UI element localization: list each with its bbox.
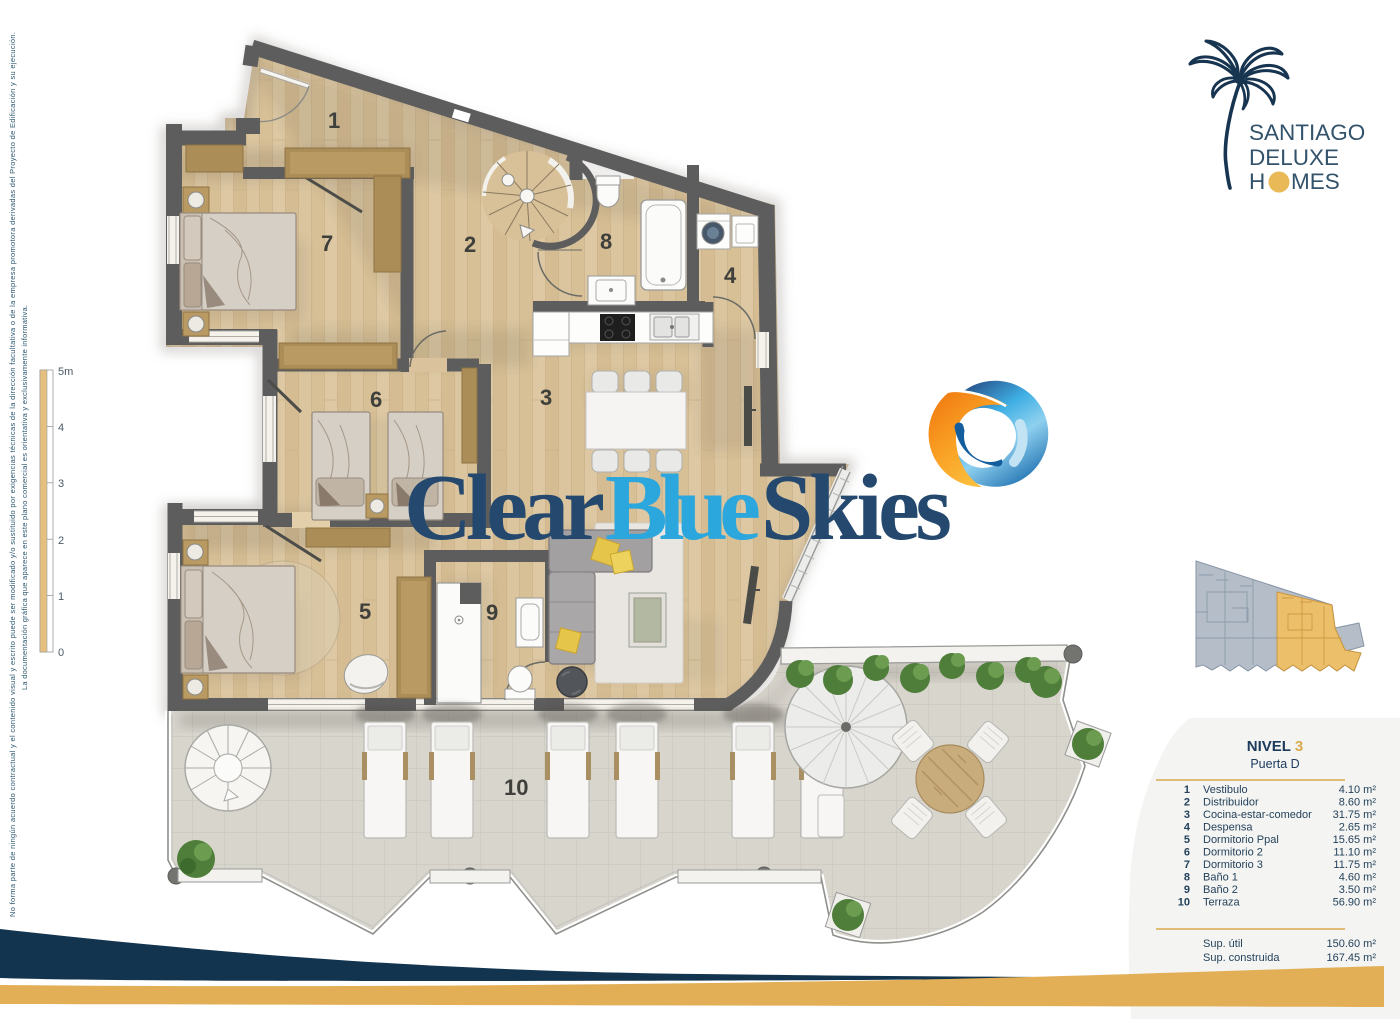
svg-text:Sup. útil: Sup. útil [1203,938,1243,950]
svg-text:8: 8 [1184,872,1190,884]
svg-text:2: 2 [1184,797,1190,809]
svg-text:6: 6 [1184,847,1190,859]
svg-text:3: 3 [58,478,64,490]
svg-text:ClearBlueSkies: ClearBlueSkies [404,456,952,560]
svg-text:Sup. construida: Sup. construida [1203,952,1280,964]
svg-text:1: 1 [328,108,340,133]
svg-text:Baño 1: Baño 1 [1203,872,1238,884]
svg-text:150.60 m²: 150.60 m² [1326,938,1376,950]
svg-text:7: 7 [1184,859,1190,871]
svg-text:Despensa: Despensa [1203,822,1253,834]
svg-text:5: 5 [359,599,371,624]
svg-text:MES: MES [1291,169,1340,194]
svg-text:3: 3 [1184,809,1190,821]
svg-text:Dormitorio Ppal: Dormitorio Ppal [1203,834,1279,846]
svg-text:La documentación gráfica que a: La documentación gráfica que aparece en … [20,305,29,690]
svg-text:9: 9 [1184,884,1190,896]
svg-text:Cocina-estar-comedor: Cocina-estar-comedor [1203,809,1312,821]
svg-text:8.60 m²: 8.60 m² [1339,797,1377,809]
svg-text:DELUXE: DELUXE [1249,145,1339,170]
svg-text:0: 0 [58,647,64,659]
svg-text:11.75 m²: 11.75 m² [1333,859,1376,871]
svg-text:Dormitorio 2: Dormitorio 2 [1203,847,1263,859]
svg-text:4.10 m²: 4.10 m² [1339,784,1377,796]
svg-text:4: 4 [724,263,737,288]
svg-text:1: 1 [1184,784,1190,796]
svg-text:3: 3 [540,385,552,410]
svg-text:8: 8 [600,229,612,254]
svg-text:Distribuidor: Distribuidor [1203,797,1259,809]
svg-text:6: 6 [370,387,382,412]
svg-text:Terraza: Terraza [1203,897,1241,909]
svg-text:9: 9 [486,600,498,625]
svg-text:56.90 m²: 56.90 m² [1333,897,1377,909]
svg-text:1: 1 [58,591,64,603]
svg-text:2.65 m²: 2.65 m² [1339,822,1377,834]
svg-text:10: 10 [1178,897,1190,909]
svg-text:SANTIAGO: SANTIAGO [1249,120,1365,145]
svg-text:3.50 m²: 3.50 m² [1339,884,1377,896]
svg-text:31.75 m²: 31.75 m² [1333,809,1377,821]
svg-text:5m: 5m [58,366,73,378]
svg-text:Vestibulo: Vestibulo [1203,784,1248,796]
svg-text:Dormitorio 3: Dormitorio 3 [1203,859,1263,871]
svg-text:No forma parte de ningún acuer: No forma parte de ningún acuerdo contrac… [8,32,17,917]
svg-text:11.10 m²: 11.10 m² [1333,847,1376,859]
svg-text:4.60 m²: 4.60 m² [1339,872,1377,884]
svg-text:Baño 2: Baño 2 [1203,884,1238,896]
svg-text:7: 7 [321,231,333,256]
svg-text:H: H [1249,169,1265,194]
svg-text:10: 10 [504,775,528,800]
svg-text:15.65 m²: 15.65 m² [1333,834,1377,846]
svg-text:4: 4 [58,422,64,434]
svg-text:Puerta D: Puerta D [1250,757,1299,771]
svg-text:4: 4 [1184,822,1191,834]
svg-text:2: 2 [464,232,476,257]
svg-text:NIVEL 3: NIVEL 3 [1247,738,1303,755]
svg-text:2: 2 [58,535,64,547]
svg-text:5: 5 [1184,834,1190,846]
svg-text:167.45 m²: 167.45 m² [1326,952,1376,964]
